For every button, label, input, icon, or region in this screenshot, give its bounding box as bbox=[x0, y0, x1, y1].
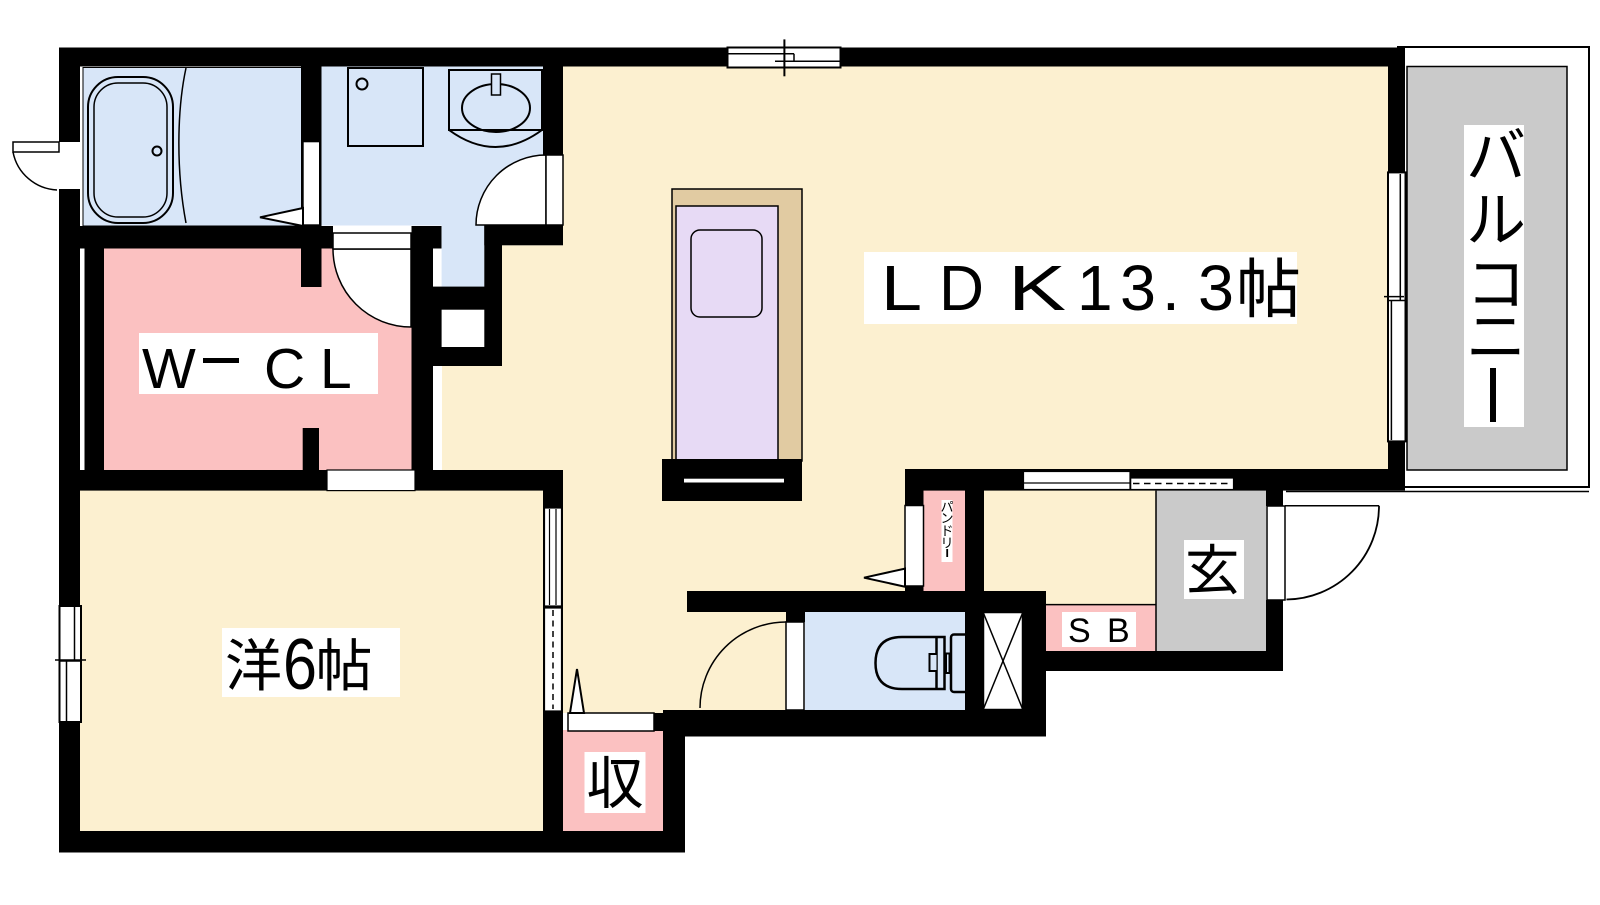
svg-text:3: 3 bbox=[1198, 252, 1234, 324]
svg-text:C: C bbox=[264, 337, 305, 401]
svg-text:L: L bbox=[881, 252, 922, 324]
svg-text:D: D bbox=[939, 252, 984, 324]
svg-text:W: W bbox=[142, 337, 196, 401]
svg-text:S: S bbox=[1068, 612, 1091, 650]
svg-text:B: B bbox=[1107, 612, 1130, 650]
svg-text:K: K bbox=[1008, 252, 1066, 324]
svg-text:6: 6 bbox=[283, 625, 317, 705]
svg-text:1: 1 bbox=[1077, 252, 1113, 324]
svg-text:.: . bbox=[1162, 252, 1180, 324]
svg-text:3: 3 bbox=[1120, 252, 1156, 324]
svg-text:L: L bbox=[320, 337, 352, 401]
